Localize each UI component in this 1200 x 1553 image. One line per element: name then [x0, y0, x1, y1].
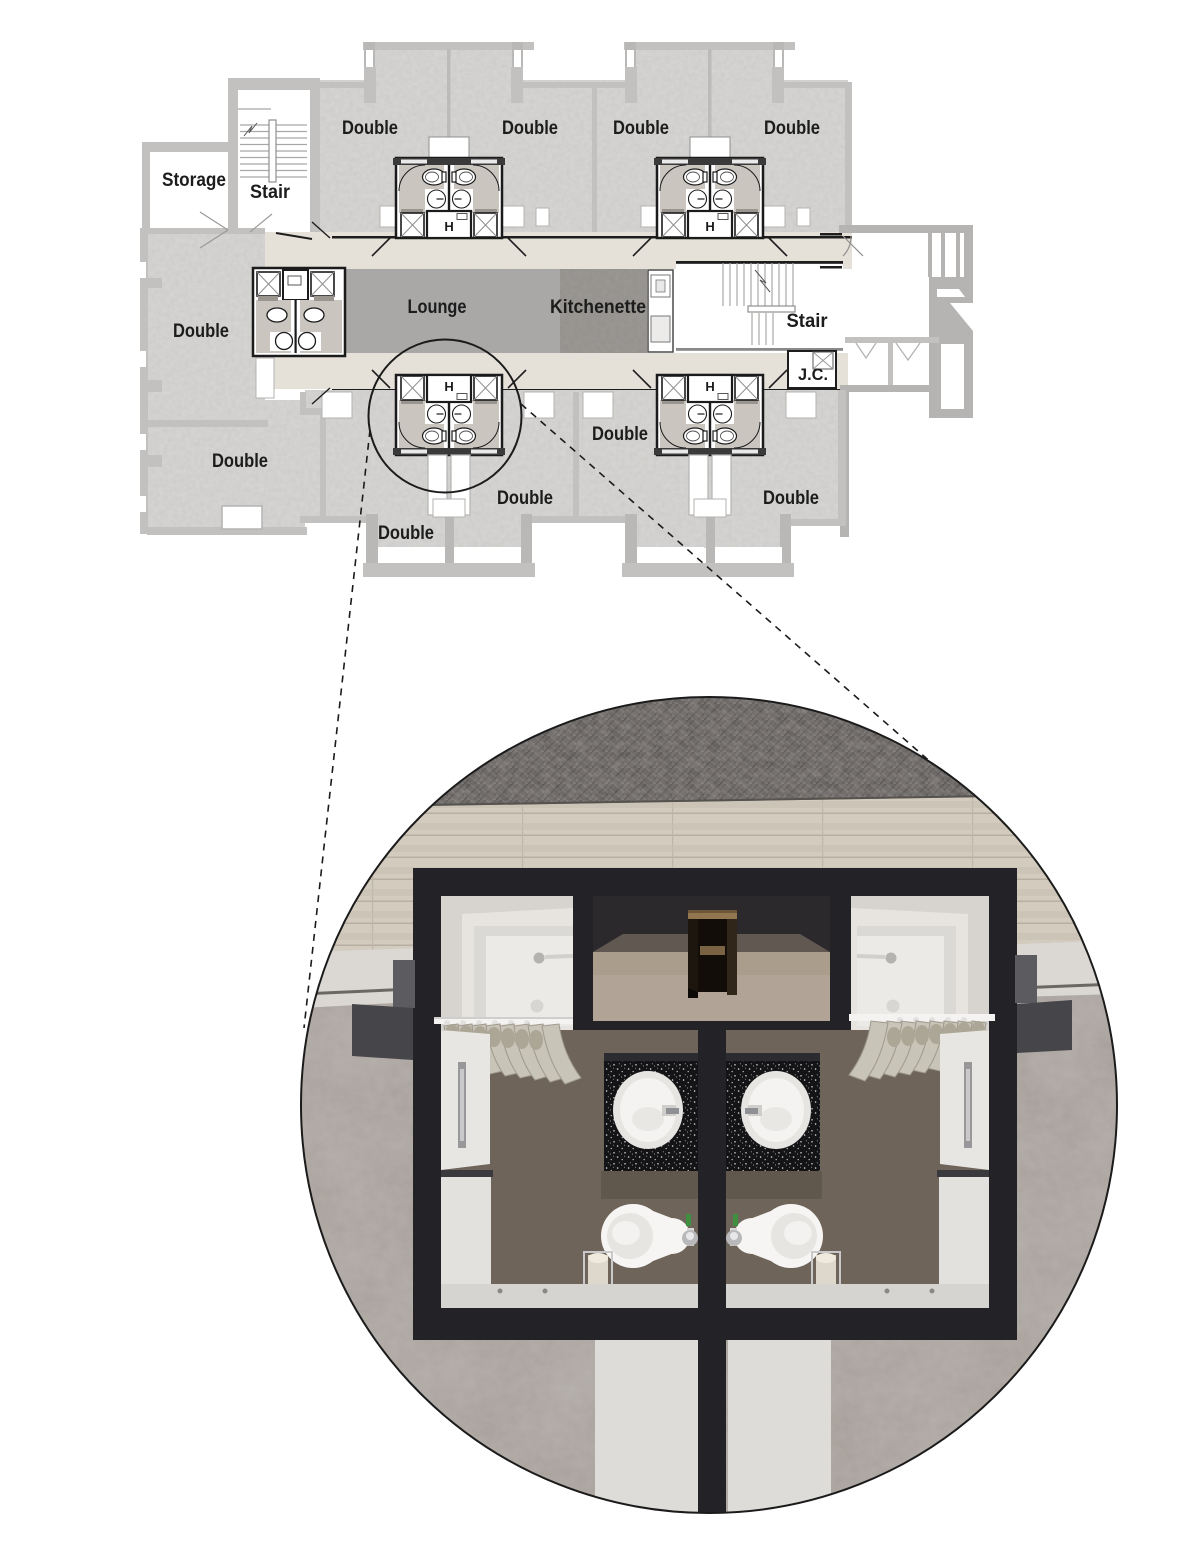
svg-text:Double: Double [342, 117, 398, 139]
svg-text:Lounge: Lounge [408, 296, 467, 318]
svg-text:Double: Double [502, 117, 558, 139]
svg-text:Kitchenette: Kitchenette [550, 296, 646, 318]
svg-text:Double: Double [378, 522, 434, 544]
svg-text:Storage: Storage [162, 170, 226, 191]
svg-text:Double: Double [497, 487, 553, 509]
svg-text:J.C.: J.C. [798, 365, 828, 384]
svg-text:Stair: Stair [250, 182, 291, 203]
svg-text:Double: Double [173, 320, 229, 342]
svg-text:Double: Double [613, 117, 669, 139]
svg-text:Double: Double [212, 450, 268, 472]
svg-text:Stair: Stair [787, 310, 828, 332]
svg-text:Double: Double [764, 117, 820, 139]
svg-text:Double: Double [763, 487, 819, 509]
svg-text:Double: Double [592, 423, 648, 445]
